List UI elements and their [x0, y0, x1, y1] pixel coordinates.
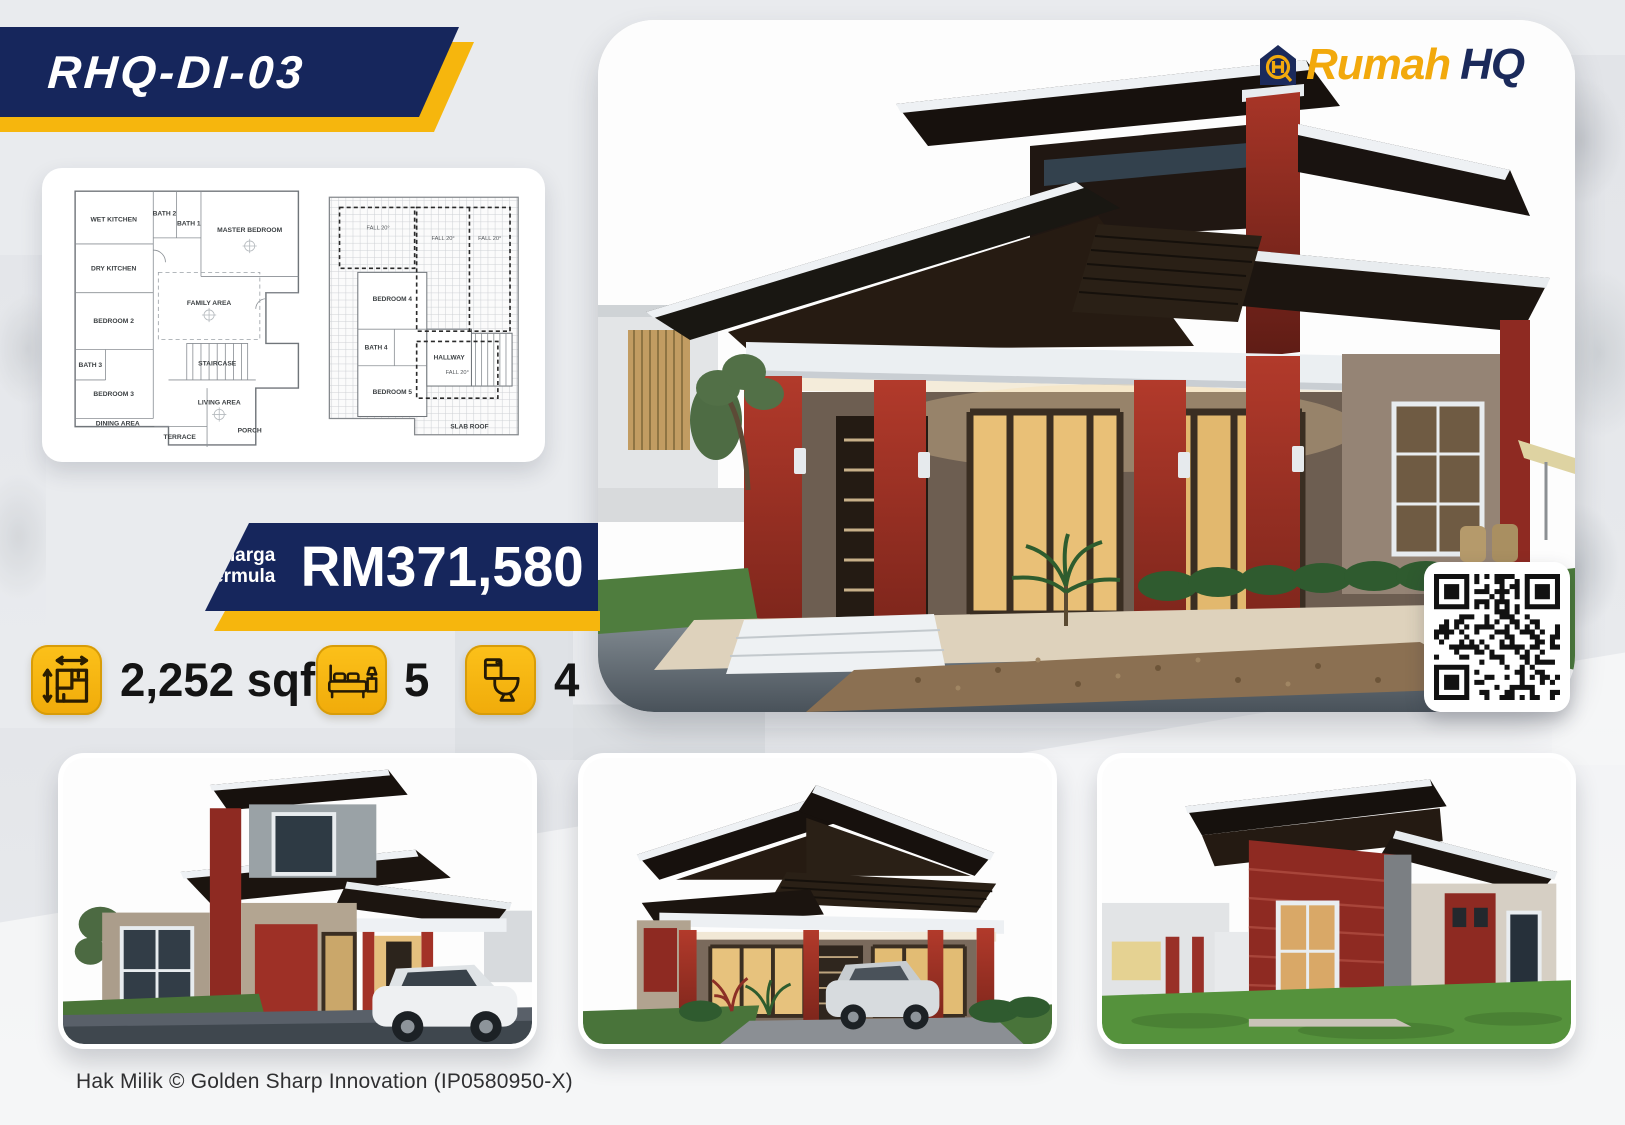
- floor-area-icon: [41, 654, 93, 706]
- thumb-house-render-1: [63, 758, 532, 1044]
- model-badge: RHQ-DI-03: [0, 27, 459, 117]
- brand-logo: Rumah HQ: [1258, 42, 1524, 88]
- spec-bathrooms-tile: [465, 645, 536, 715]
- model-code: RHQ-DI-03: [0, 45, 307, 99]
- thumbnail-card-front-view: [578, 753, 1057, 1049]
- plan-room-label: BEDROOM 2: [93, 318, 134, 325]
- flyer-root: { "model_badge": { "code": "RHQ-DI-03" }…: [0, 0, 1625, 1125]
- plan-room-label: TERRACE: [163, 434, 196, 441]
- plan-room-label: MASTER BEDROOM: [217, 227, 282, 234]
- toilet-icon: [476, 654, 526, 706]
- roof-fall-label: FALL 20°: [432, 236, 455, 242]
- plan-room-label: BEDROOM 4: [373, 296, 413, 303]
- plan-room-label: LIVING AREA: [198, 399, 241, 406]
- plan-room-label: HALLWAY: [434, 355, 466, 362]
- roof-fall-label: FALL 20°: [479, 236, 502, 242]
- price-amount: RM371,580: [301, 534, 584, 600]
- plan-room-label: BATH 4: [365, 345, 388, 352]
- rumahhq-house-icon: [1258, 42, 1298, 88]
- thumbnail-card-side-view: [1097, 753, 1576, 1049]
- spec-bedrooms-tile: [316, 645, 387, 715]
- bed-icon: [325, 655, 379, 705]
- qr-pattern: [1434, 574, 1560, 700]
- spec-area-tile: [31, 645, 102, 715]
- plan-room-label: BEDROOM 5: [373, 389, 413, 396]
- brand-name-accent: Rumah: [1306, 43, 1450, 87]
- thumb-house-render-3: [1102, 758, 1571, 1044]
- spec-bathrooms-value: 4: [554, 645, 579, 715]
- thumbnail-card-angle-view: [58, 753, 537, 1049]
- price-banner: Harga bermula RM371,580: [205, 523, 598, 611]
- plan-room-label: BATH 1: [177, 221, 201, 228]
- spec-area-value: 2,252 sqf: [120, 645, 315, 715]
- qr-code: [1424, 562, 1570, 712]
- price-label-top: Harga: [221, 545, 275, 566]
- plan-room-label: PORCH: [238, 428, 262, 435]
- price-banner-underline: [214, 611, 600, 631]
- plan-room-label: BATH 2: [153, 211, 177, 218]
- plan-room-label: WET KITCHEN: [90, 217, 137, 224]
- plan-room-label: STAIRCASE: [198, 361, 237, 368]
- roof-fall-label: FALL 20°: [367, 226, 390, 232]
- first-floorplan: BEDROOM 4 BATH 4 HALLWAY BEDROOM 5 SLAB …: [315, 179, 533, 451]
- price-label-bottom: bermula: [201, 566, 275, 587]
- plan-room-label: BATH 3: [79, 362, 103, 369]
- brand-name-dark: HQ: [1460, 43, 1524, 87]
- floorplan-card: WET KITCHEN DRY KITCHEN BATH 2 BATH 1 MA…: [42, 168, 545, 462]
- plan-room-label: BEDROOM 3: [93, 391, 134, 398]
- price-label: Harga bermula: [201, 546, 275, 588]
- ground-floorplan: WET KITCHEN DRY KITCHEN BATH 2 BATH 1 MA…: [54, 179, 315, 451]
- plan-room-label: SLAB ROOF: [451, 424, 489, 431]
- plan-room-label: FAMILY AREA: [187, 300, 232, 307]
- copyright-text: Hak Milik © Golden Sharp Innovation (IP0…: [76, 1070, 573, 1094]
- plan-room-label: DINING AREA: [96, 421, 140, 428]
- spec-bedrooms-value: 5: [404, 645, 429, 715]
- thumb-house-render-2: [583, 758, 1052, 1044]
- plan-room-label: DRY KITCHEN: [91, 265, 137, 272]
- roof-fall-label: FALL 20°: [446, 370, 469, 376]
